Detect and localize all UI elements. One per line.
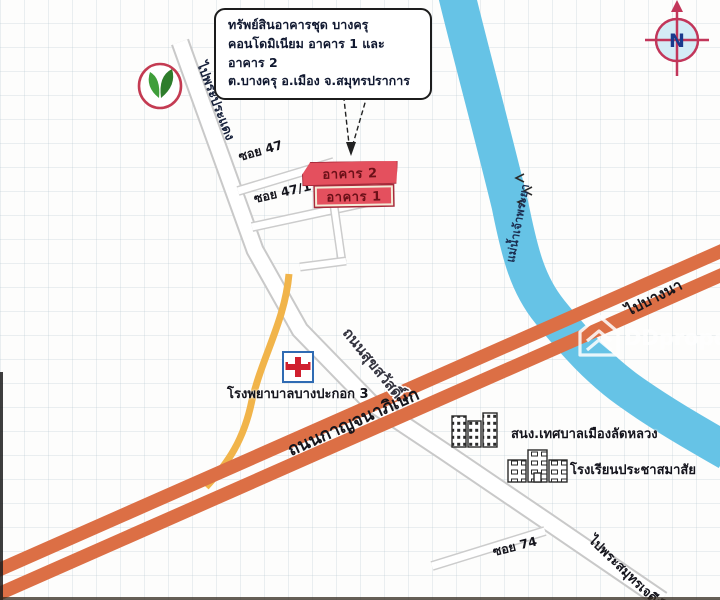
road-label-soi47: ซอย 47 [237, 137, 284, 164]
bank-logo-icon [139, 64, 181, 108]
callout-line-2: คอนโดมิเนียม อาคาร 1 และ อาคาร 2 [228, 35, 420, 73]
building-2-marker: อาคาร 2 [302, 160, 399, 187]
compass-rose: N [645, 0, 709, 76]
school-icon [508, 450, 567, 482]
property-callout: ทรัพย์สินอาคารชุด บางครุ คอนโดมิเนียม อา… [214, 8, 432, 100]
river [456, 0, 720, 452]
suksawat-road-casing [180, 42, 662, 600]
watermark-brand-text: DDproperty [624, 326, 720, 350]
suksawat-road [180, 42, 662, 600]
building-1-marker: อาคาร 1 [315, 185, 393, 206]
scan-edge-left [0, 372, 3, 600]
callout-line-1: ทรัพย์สินอาคารชุด บางครุ [228, 16, 420, 35]
compass-n-label: N [669, 30, 685, 52]
hospital-label: โรงพยาบาลบางปะกอก 3 [227, 383, 369, 404]
hospital-icon [283, 352, 313, 382]
callout-line-3: ต.บางครุ อ.เมือง จ.สมุทรปราการ [228, 72, 420, 91]
municipality-label: สนง.เทศบาลเมืองลัดหลวง [511, 423, 658, 444]
building-1-label: อาคาร 1 [326, 185, 382, 207]
school-label: โรงเรียนประชาสมาสัย [570, 459, 696, 480]
property-location-map: N ไปพระประแดง ซอย 47 ซอย 47/1 ซอย 74 [0, 0, 720, 600]
municipality-office-icon [452, 413, 497, 447]
building-2-label: อาคาร 2 [322, 162, 378, 184]
